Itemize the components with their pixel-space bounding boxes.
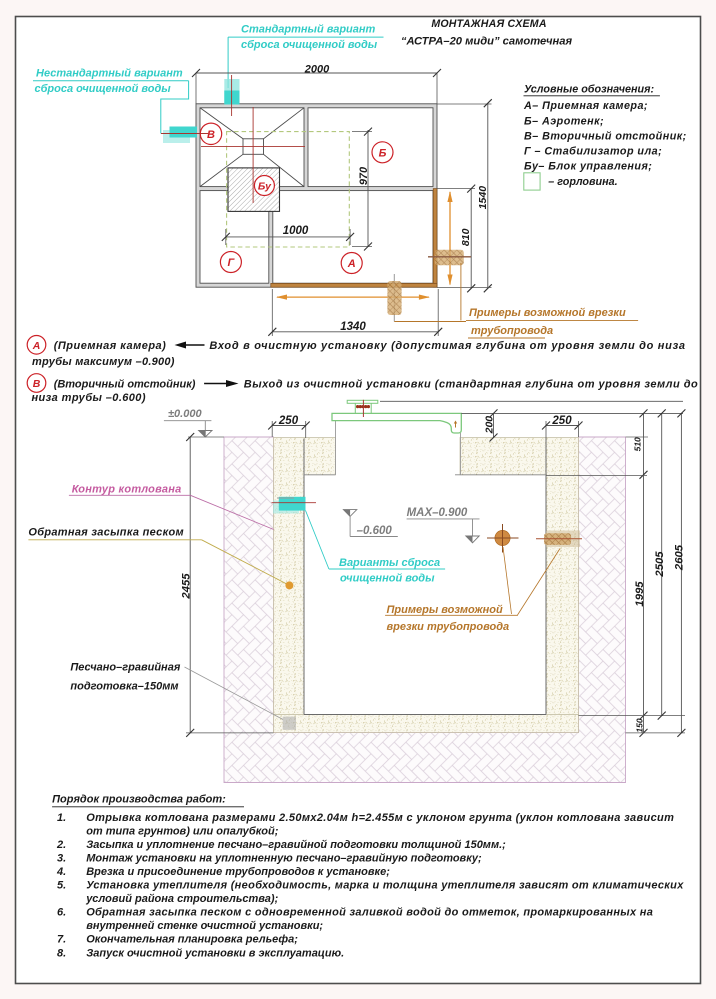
svg-text:Выход из очистной установки (с: Выход из очистной установки (стандартная… <box>244 379 698 391</box>
svg-text:Порядок производства работ:: Порядок производства работ: <box>52 794 226 806</box>
svg-text:Г – Стабилизатор ила;: Г – Стабилизатор ила; <box>524 146 662 158</box>
svg-text:от типа грунтов) или опалубкой: от типа грунтов) или опалубкой; <box>86 825 279 837</box>
svg-text:Песчано–гравийная: Песчано–гравийная <box>70 662 180 674</box>
svg-text:4.: 4. <box>56 866 66 878</box>
svg-text:2000: 2000 <box>304 63 330 75</box>
svg-text:МОНТАЖНАЯ СХЕМА: МОНТАЖНАЯ СХЕМА <box>431 18 546 30</box>
svg-text:“АСТРА–20 миди” самотечная: “АСТРА–20 миди” самотечная <box>401 35 573 47</box>
svg-text:1540: 1540 <box>477 186 489 210</box>
svg-text:В– Вторичный отстойник;: В– Вторичный отстойник; <box>524 130 687 142</box>
svg-text:200: 200 <box>483 416 495 435</box>
svg-text:внутренней стенке очистной уст: внутренней стенке очистной установки; <box>86 920 323 932</box>
svg-text:2605: 2605 <box>674 544 686 571</box>
svg-text:1995: 1995 <box>634 581 646 607</box>
svg-text:Контур котлована: Контур котлована <box>72 484 182 496</box>
svg-text:Б: Б <box>379 148 387 160</box>
svg-text:510: 510 <box>632 437 642 451</box>
svg-text:(Вторичный отстойник): (Вторичный отстойник) <box>54 379 196 391</box>
svg-text:А– Приемная камера;: А– Приемная камера; <box>523 100 648 112</box>
svg-text:Окончательная планировка релье: Окончательная планировка рельефа; <box>86 934 298 946</box>
svg-text:1000: 1000 <box>283 225 309 237</box>
svg-text:Б– Аэротенк;: Б– Аэротенк; <box>524 115 604 127</box>
svg-text:Бу: Бу <box>258 181 272 193</box>
svg-text:±0.000: ±0.000 <box>168 408 202 420</box>
svg-text:Запуск очистной установки в эк: Запуск очистной установки в эксплуатацию… <box>86 947 344 959</box>
svg-text:Бу– Блок управления;: Бу– Блок управления; <box>524 161 652 173</box>
svg-text:1.: 1. <box>57 812 66 824</box>
svg-text:Отрывка котлована размерами 2.: Отрывка котлована размерами 2.50мх2.04м … <box>86 812 674 824</box>
svg-text:Врезка и присоединение трубопр: Врезка и присоединение трубопроводов к у… <box>86 866 390 878</box>
svg-text:6.: 6. <box>57 907 66 919</box>
svg-text:2.: 2. <box>56 839 66 851</box>
svg-text:В: В <box>207 129 215 141</box>
svg-text:низа трубы –0.600): низа трубы –0.600) <box>32 392 146 404</box>
svg-text:–0.600: –0.600 <box>357 525 393 537</box>
svg-text:трубы максимум –0.900): трубы максимум –0.900) <box>32 356 175 368</box>
svg-text:А: А <box>347 258 356 270</box>
svg-text:1340: 1340 <box>340 321 366 333</box>
svg-text:5.: 5. <box>57 880 66 892</box>
svg-text:Обратная засыпка песком с одно: Обратная засыпка песком с одновременной … <box>86 907 653 919</box>
svg-text:врезки трубопровода: врезки трубопровода <box>387 621 510 633</box>
svg-text:Условные обозначения:: Условные обозначения: <box>524 83 654 95</box>
svg-text:очищенной воды: очищенной воды <box>340 572 435 584</box>
svg-text:А: А <box>32 340 41 352</box>
svg-text:Засыпка и уплотнение песчано–г: Засыпка и уплотнение песчано–гравийной п… <box>86 839 506 851</box>
svg-text:3.: 3. <box>57 852 66 864</box>
svg-text:Монтаж установки на уплотненну: Монтаж установки на уплотненную песчано–… <box>86 852 482 864</box>
svg-text:2505: 2505 <box>654 551 666 578</box>
svg-text:250: 250 <box>551 415 572 427</box>
svg-text:250: 250 <box>278 415 299 427</box>
svg-text:подготовка–150мм: подготовка–150мм <box>70 681 178 693</box>
svg-text:Варианты сброса: Варианты сброса <box>339 557 440 569</box>
svg-text:(Приемная камера): (Приемная камера) <box>54 340 167 352</box>
svg-text:810: 810 <box>460 228 472 246</box>
svg-text:Вход в очистную установку (доп: Вход в очистную установку (допустимая гл… <box>209 340 685 352</box>
svg-text:Нестандартный вариант: Нестандартный вариант <box>36 68 183 80</box>
svg-text:MAX–0.900: MAX–0.900 <box>407 507 468 519</box>
svg-text:сброса очищенной воды: сброса очищенной воды <box>35 83 172 95</box>
svg-text:150: 150 <box>634 718 644 732</box>
svg-text:Установка утеплителя (необходи: Установка утеплителя (необходимость, мар… <box>86 880 684 892</box>
svg-text:2455: 2455 <box>180 573 192 600</box>
svg-text:В: В <box>33 378 41 390</box>
svg-text:условий района строительства);: условий района строительства); <box>85 893 278 905</box>
svg-text:сброса очищенной воды: сброса очищенной воды <box>241 39 378 51</box>
svg-text:трубопровода: трубопровода <box>471 325 553 337</box>
svg-text:Обратная засыпка песком: Обратная засыпка песком <box>28 527 184 539</box>
svg-text:7.: 7. <box>57 934 66 946</box>
svg-text:– горловина.: – горловина. <box>548 176 617 188</box>
svg-text:8.: 8. <box>57 947 66 959</box>
svg-text:Примеры возможной врезки: Примеры возможной врезки <box>469 307 626 319</box>
svg-text:Примеры возможной: Примеры возможной <box>387 604 504 616</box>
svg-text:Стандартный вариант: Стандартный вариант <box>241 24 376 36</box>
svg-text:970: 970 <box>358 166 370 185</box>
